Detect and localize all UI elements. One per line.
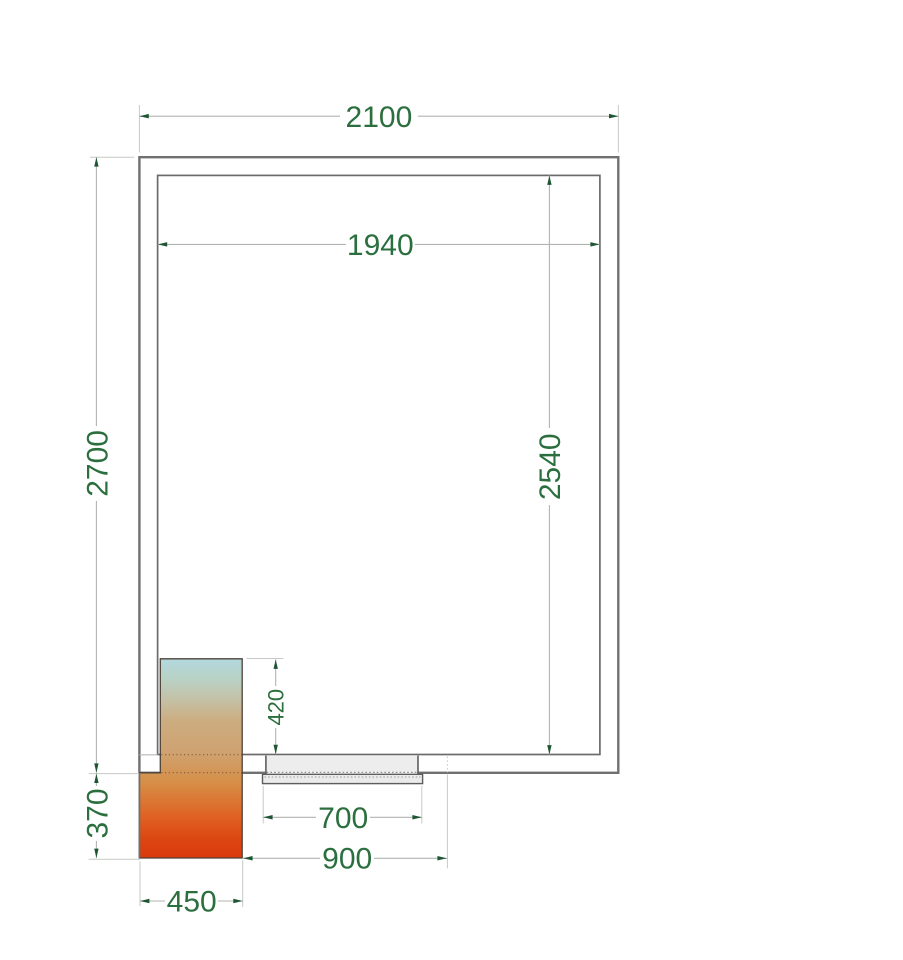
svg-text:2540: 2540 xyxy=(534,433,567,500)
svg-text:370: 370 xyxy=(81,788,114,838)
svg-text:700: 700 xyxy=(318,802,368,835)
svg-text:2700: 2700 xyxy=(81,430,114,497)
svg-text:2100: 2100 xyxy=(346,101,413,134)
svg-text:900: 900 xyxy=(322,843,372,876)
svg-text:450: 450 xyxy=(167,886,217,919)
svg-text:420: 420 xyxy=(263,689,288,726)
svg-text:1940: 1940 xyxy=(347,229,414,262)
